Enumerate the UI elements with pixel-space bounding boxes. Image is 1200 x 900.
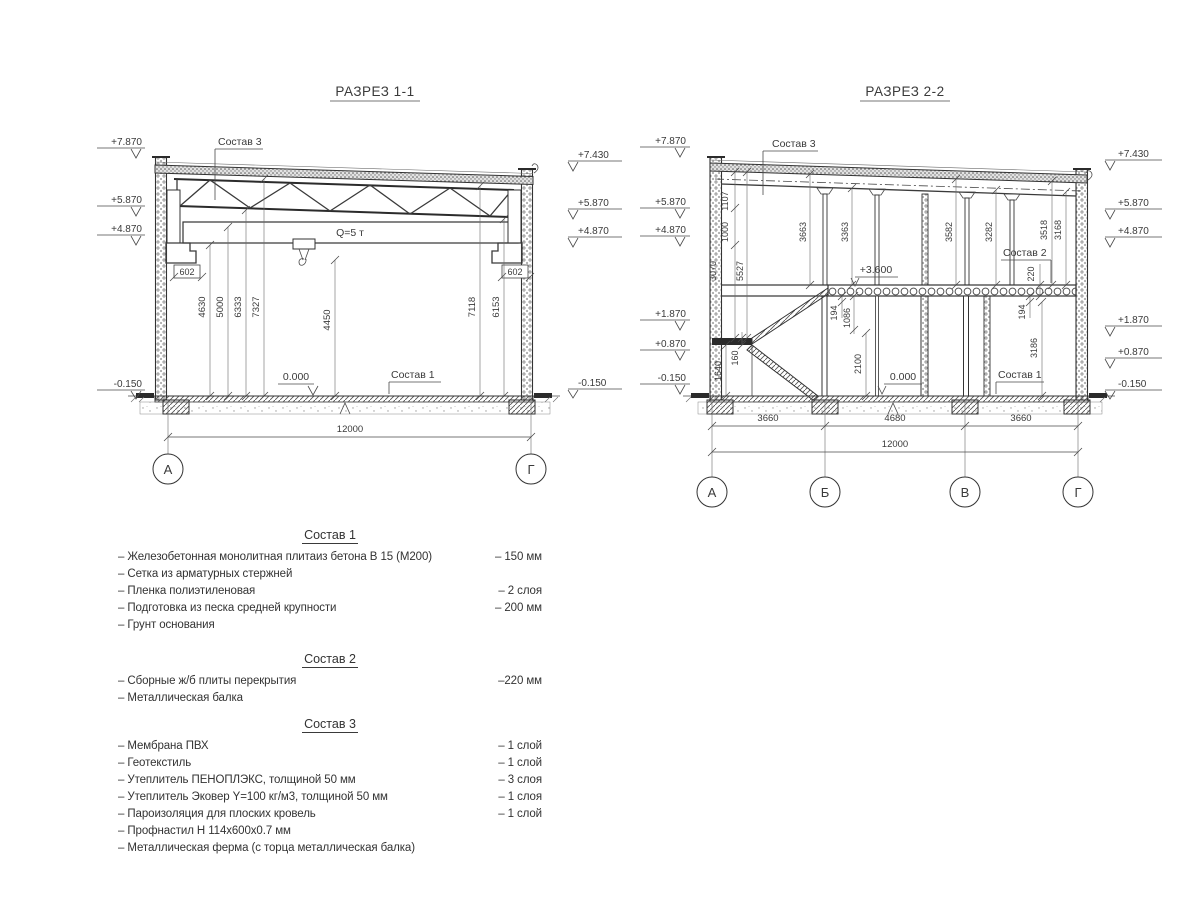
dim-label: 3518 [1039, 220, 1049, 240]
dim-label: 220 [1026, 266, 1036, 281]
zero-level-label: 0.000 [283, 371, 309, 383]
axis-bubble-g: Г [1074, 485, 1081, 500]
dim-label: 2100 [853, 354, 863, 374]
floor-1-1 [128, 393, 560, 414]
composition-title-text: Состав 1 [302, 528, 358, 544]
walls-1-1 [152, 157, 536, 400]
elevation-mark: +5.870 [1118, 198, 1149, 209]
dim-label: 6153 [491, 296, 502, 317]
dim-label: 6333 [233, 296, 244, 317]
composition-1: Состав 1 – Железобетонная монолитная пли… [118, 528, 542, 634]
composition-1-title: Состав 1 [118, 528, 542, 542]
sostav1-label: Состав 1 [998, 369, 1042, 381]
crane-capacity-label: Q=5 т [336, 227, 364, 239]
sostav2-label: Состав 2 [1003, 247, 1047, 259]
elevation-mark: -0.150 [1118, 379, 1147, 390]
section-2-2: РАЗРЕЗ 2-2 [640, 84, 1162, 507]
section-2-2-title: РАЗРЕЗ 2-2 [865, 84, 944, 99]
elevation-mark: +4.870 [655, 225, 686, 236]
dim-label: 12000 [882, 439, 908, 450]
elevations-right-1-1: +7.430 +5.870 +4.870 -0.150 [568, 150, 622, 398]
dim-label: 3070 [708, 261, 718, 281]
axis-bubble-a: А [708, 485, 717, 500]
drawing-canvas: РАЗРЕЗ 1-1 Q=5 т [0, 0, 1200, 520]
dim-label: 3363 [840, 222, 850, 242]
elevation-mark: -0.150 [114, 379, 143, 390]
elevation-mark: +7.870 [111, 137, 142, 148]
sostav1-label: Состав 1 [391, 369, 435, 381]
sostav3-label: Состав 3 [772, 138, 816, 150]
dim-label: 5000 [215, 296, 226, 317]
list-item: – Сетка из арматурных стержней [118, 566, 542, 583]
elevation-mark: +1.870 [655, 309, 686, 320]
elevation-mark: +4.870 [1118, 226, 1149, 237]
composition-title-text: Состав 3 [302, 717, 358, 733]
dim-label: 4450 [322, 309, 333, 330]
dim-label: 3582 [944, 222, 954, 242]
dim-label: 7118 [467, 297, 478, 317]
dim-label: 3282 [984, 222, 994, 242]
list-item: – Металлическая ферма (с торца металличе… [118, 840, 542, 857]
dim-label: 4680 [884, 413, 905, 424]
elevations-right-2-2: +7.430 +5.870 +4.870 +1.870 +0.870 -0.15… [1105, 149, 1162, 399]
dim-label: 1107 [720, 191, 730, 210]
crane-beam: Q=5 т [183, 222, 518, 265]
list-item: – Грунт основания [118, 617, 542, 634]
composition-2: Состав 2 – Сборные ж/б плиты перекрытия–… [118, 652, 542, 707]
elevation-mark: -0.150 [658, 373, 687, 384]
dim-label: 3660 [1010, 413, 1031, 424]
list-item: – Профнастил Н 114х600х0.7 мм [118, 823, 542, 840]
elevations-left-1-1: +7.870 +5.870 +4.870 -0.150 [97, 137, 145, 399]
dim-label: 7327 [251, 296, 262, 317]
elevation-mark: +5.870 [655, 197, 686, 208]
list-item: – Сборные ж/б плиты перекрытия–220 мм [118, 673, 542, 690]
elevation-mark: +5.870 [578, 198, 609, 209]
composition-3: Состав 3 – Мембрана ПВХ– 1 слой – Геотек… [118, 717, 542, 857]
dim-label: 1000 [720, 222, 730, 242]
zero-level-label: 0.000 [890, 371, 916, 383]
dim-label: 12000 [337, 424, 363, 435]
dim-label: 3660 [757, 413, 778, 424]
sostav3-label: Состав 3 [218, 136, 262, 148]
list-item: – Металлическая балка [118, 690, 542, 707]
composition-3-title: Состав 3 [118, 717, 542, 731]
dim-label: 3168 [1053, 220, 1063, 240]
bottom-dims-2-2: 3660 4680 3660 12000 А Б В Г [697, 400, 1093, 507]
elevations-left-2-2: +7.870 +5.870 +4.870 +1.870 +0.870 -0.15… [640, 136, 690, 394]
axis-bubble-b: Б [821, 485, 830, 500]
dim-label: 3663 [798, 222, 808, 242]
dim-label: 160 [730, 350, 740, 365]
list-item: – Пленка полиэтиленовая– 2 слоя [118, 583, 542, 600]
dim-label: 3186 [1029, 338, 1039, 358]
dim-label: 1640 [713, 361, 723, 381]
elevation-mark: +0.870 [655, 339, 686, 350]
dim-label: 194 [1017, 304, 1027, 319]
dim-label: 602 [507, 267, 522, 277]
elevation-mark: +1.870 [1118, 315, 1149, 326]
composition-2-title: Состав 2 [118, 652, 542, 666]
dim-label: 1086 [842, 308, 852, 328]
list-item: – Мембрана ПВХ– 1 слой [118, 738, 542, 755]
axis-bubble-v: В [961, 485, 970, 500]
elevation-mark: +4.870 [111, 224, 142, 235]
list-item: – Подготовка из песка средней крупности–… [118, 600, 542, 617]
list-item: – Пароизоляция для плоских кровель– 1 сл… [118, 806, 542, 823]
elevation-mark: +7.430 [1118, 149, 1149, 160]
drawing-sheet: РАЗРЕЗ 1-1 Q=5 т [0, 0, 1200, 900]
list-item: – Утеплитель ПЕНОПЛЭКС, толщиной 50 мм– … [118, 772, 542, 789]
roof-2-2 [710, 160, 1092, 196]
dim-label: 194 [829, 305, 839, 320]
section-1-1-title: РАЗРЕЗ 1-1 [335, 84, 414, 99]
axis-bubble-g: Г [527, 462, 534, 477]
composition-title-text: Состав 2 [302, 652, 358, 668]
mezz-level-label: +3.600 [860, 264, 893, 276]
dim-label: 5527 [735, 261, 745, 281]
elevation-mark: +5.870 [111, 195, 142, 206]
elevation-mark: +0.870 [1118, 347, 1149, 358]
list-item: – Утеплитель Эковер Y=100 кг/м3, толщино… [118, 789, 542, 806]
dim-602: 602 602 [170, 265, 534, 281]
section-1-1: РАЗРЕЗ 1-1 Q=5 т [97, 84, 622, 484]
elevation-mark: +7.430 [578, 150, 609, 161]
floor-2-2 [683, 393, 1115, 414]
elevation-mark: +7.870 [655, 136, 686, 147]
list-item: – Геотекстиль– 1 слой [118, 755, 542, 772]
composition-notes: Состав 1 – Железобетонная монолитная пли… [118, 528, 542, 857]
roof-truss [174, 179, 514, 217]
mezzanine-slab [722, 285, 1077, 296]
elevation-mark: -0.150 [578, 378, 607, 389]
dim-label: 602 [179, 267, 194, 277]
staircase [712, 288, 828, 400]
axis-bubble-a: А [164, 462, 173, 477]
list-item: – Железобетонная монолитная плитаиз бето… [118, 549, 542, 566]
elevation-mark: +4.870 [578, 226, 609, 237]
dim-label: 4630 [197, 296, 208, 317]
